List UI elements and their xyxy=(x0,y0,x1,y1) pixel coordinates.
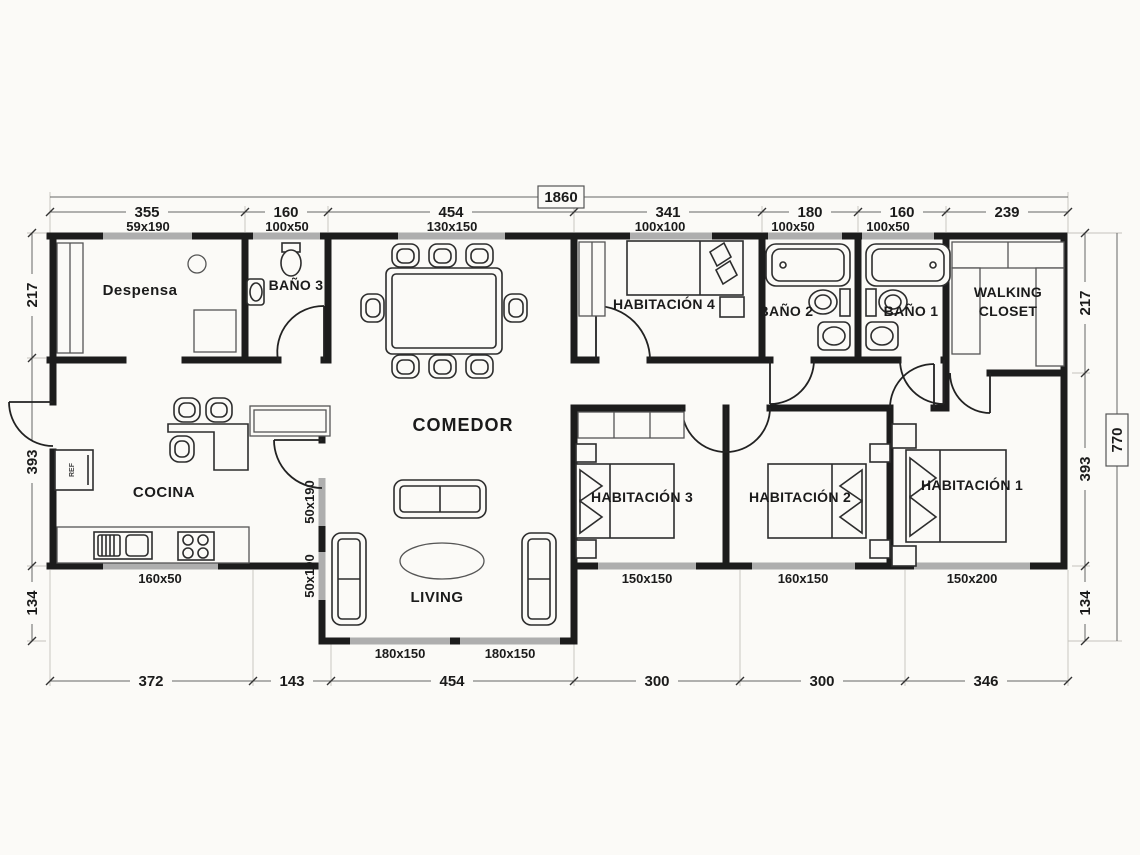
furniture-bano2 xyxy=(766,244,850,350)
nightstand-icon xyxy=(870,540,890,558)
room-label-comedor: COMEDOR xyxy=(413,415,514,435)
total-width-value: 1860 xyxy=(544,189,577,206)
furniture-bano3 xyxy=(247,243,301,305)
dim-left-2: 393 xyxy=(24,449,41,474)
nightstand-icon xyxy=(892,424,916,448)
dim-total-height: 770 xyxy=(1106,414,1128,466)
furniture-cocina: REF xyxy=(55,398,249,563)
toilet-icon xyxy=(866,289,876,316)
room-label-habitacion3: HABITACIÓN 3 xyxy=(591,488,693,505)
dim-left-1: 217 xyxy=(24,282,41,307)
dim-bottom-1: 372 xyxy=(138,673,163,690)
window-label-habitacion1: 150x200 xyxy=(947,571,998,586)
floor-plan-page: 1860 770 355 160 454 341 180 160 239 372… xyxy=(0,0,1140,855)
window-label-comedor: 130x150 xyxy=(427,219,478,234)
furniture-habitacion3 xyxy=(576,412,684,558)
nightstand-icon xyxy=(892,546,916,566)
nightstand-icon xyxy=(576,540,596,558)
room-label-living: LIVING xyxy=(410,589,463,606)
nightstand-icon xyxy=(720,297,744,317)
window-label-habitacion3: 150x150 xyxy=(622,571,673,586)
dim-bottom-4: 300 xyxy=(644,673,669,690)
rug-icon xyxy=(400,543,484,579)
dim-bottom-5: 300 xyxy=(809,673,834,690)
dim-left-3: 134 xyxy=(24,590,41,616)
window-label-bano2: 100x50 xyxy=(771,219,814,234)
window-label-habitacion2: 160x150 xyxy=(778,571,829,586)
window-label-living-bottom-left: 180x150 xyxy=(375,646,426,661)
dim-bottom-3: 454 xyxy=(439,673,465,690)
window-label-bano1: 100x50 xyxy=(866,219,909,234)
window-label-bano3: 100x50 xyxy=(265,219,308,234)
floor-plan-drawing: 1860 770 355 160 454 341 180 160 239 372… xyxy=(0,0,1140,855)
room-label-walking-closet-line2: CLOSET xyxy=(979,303,1038,319)
room-label-bano3: BAÑO 3 xyxy=(269,276,324,293)
room-label-habitacion4: HABITACIÓN 4 xyxy=(613,295,715,312)
window-label-despensa: 59x190 xyxy=(126,219,169,234)
dim-right-1: 217 xyxy=(1077,290,1094,315)
window-label-cocina: 160x50 xyxy=(138,571,181,586)
nightstand-icon xyxy=(576,444,596,462)
furniture-habitacion1 xyxy=(892,424,1006,566)
dim-total-width: 1860 xyxy=(538,186,584,208)
room-label-bano1: BAÑO 1 xyxy=(884,302,939,319)
dim-bottom-2: 143 xyxy=(279,673,304,690)
furniture-bano1 xyxy=(866,244,950,350)
room-label-habitacion2: HABITACIÓN 2 xyxy=(749,488,851,505)
dim-top-7: 239 xyxy=(994,204,1019,221)
room-label-walking-closet-line1: WALKING xyxy=(974,284,1042,300)
toilet-icon xyxy=(840,289,850,316)
dim-bottom-6: 346 xyxy=(973,673,998,690)
window-label-living-bottom-right: 180x150 xyxy=(485,646,536,661)
dim-right-3: 134 xyxy=(1077,590,1094,616)
room-label-habitacion1: HABITACIÓN 1 xyxy=(921,476,1023,493)
fridge-label: REF xyxy=(69,462,76,477)
room-label-despensa: Despensa xyxy=(103,282,178,299)
room-label-cocina: COCINA xyxy=(133,484,195,501)
total-height-value: 770 xyxy=(1109,427,1126,452)
window-label-living-left-lower: 50x190 xyxy=(302,554,317,597)
dim-right-2: 393 xyxy=(1077,456,1094,481)
room-label-bano2: BAÑO 2 xyxy=(759,302,814,319)
window-label-habitacion4: 100x100 xyxy=(635,219,686,234)
nightstand-icon xyxy=(870,444,890,462)
